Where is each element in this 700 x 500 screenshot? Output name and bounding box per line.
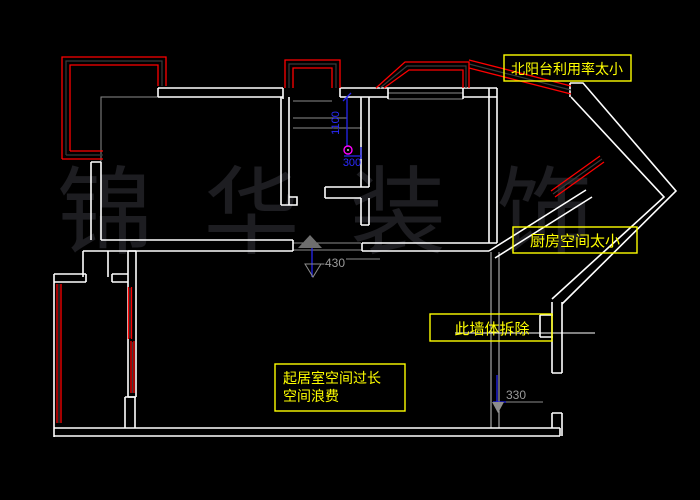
watermark-text: 锦 华 装 饰 [57, 157, 603, 269]
wall-remove-label: 此墙体拆除 [454, 321, 529, 338]
dim-1100: 1100 [330, 111, 342, 135]
inner-wall-window [129, 287, 135, 393]
bottom-door-stub [125, 397, 135, 428]
living-label-line1: 起居室空间过长 [283, 370, 381, 386]
lower-left-walls [54, 251, 136, 437]
north-balcony-label: 北阳台利用率太小 [511, 61, 623, 77]
dim-300: 300 [343, 157, 361, 169]
floor-plan-drawing: 锦 华 装 饰 [0, 0, 700, 500]
balcony-top-left [62, 57, 166, 159]
kitchen-lower-wall [552, 302, 562, 436]
living-label-line2: 空间浪费 [283, 388, 339, 404]
cad-canvas[interactable]: 锦 华 装 饰 [0, 0, 700, 500]
dim-minus430: -430 [321, 256, 345, 270]
bottom-wall [54, 428, 560, 436]
balcony-window-line [101, 97, 158, 162]
elev-bottom-arrow [492, 402, 504, 413]
kitchen-label: 厨房空间太小 [530, 233, 620, 250]
window-sill-lines [293, 93, 463, 128]
dim-330: 330 [506, 388, 526, 402]
kitchen-counter-stub [540, 315, 553, 337]
survey-point-dot [347, 149, 349, 151]
